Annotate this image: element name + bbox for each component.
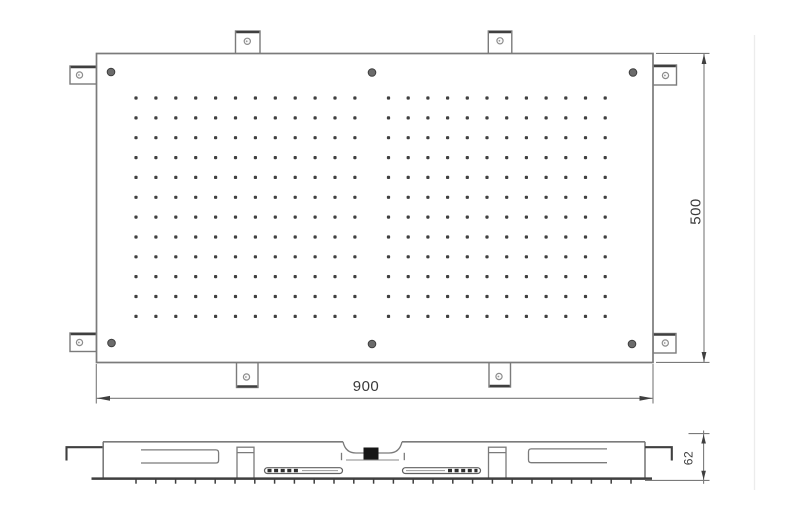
nozzle-dot — [466, 235, 469, 238]
nozzle-dot — [274, 136, 277, 139]
nozzle-dot — [505, 275, 508, 278]
nozzle-dot — [604, 255, 607, 258]
nozzle-dot — [485, 216, 488, 219]
screw-icon — [107, 68, 115, 76]
nozzle-dot — [274, 295, 277, 298]
nozzle-dot — [154, 216, 157, 219]
nozzle-dot — [584, 176, 587, 179]
nozzle-dot — [154, 96, 157, 99]
nozzle-dot — [525, 176, 528, 179]
nozzle-dot — [314, 255, 317, 258]
nozzle-dot — [564, 156, 567, 159]
nozzle-dot — [174, 196, 177, 199]
nozzle-dot — [294, 196, 297, 199]
nozzle-dot — [154, 255, 157, 258]
nozzle-dot — [134, 156, 137, 159]
nozzle-dot — [545, 136, 548, 139]
nozzle-dot — [353, 156, 356, 159]
water-inlet — [364, 448, 379, 460]
nozzle-dot — [254, 315, 257, 318]
mounting-tab — [236, 31, 261, 55]
nozzle-dot — [604, 196, 607, 199]
nozzle-dot — [353, 235, 356, 238]
nozzle-dot — [545, 96, 548, 99]
nozzle-dot — [333, 96, 336, 99]
nozzle-dot — [446, 216, 449, 219]
nozzle-dot — [446, 295, 449, 298]
screw-hole-center — [499, 40, 501, 42]
nozzle-dot — [466, 136, 469, 139]
nozzle-dot — [314, 136, 317, 139]
nozzle-dot — [314, 275, 317, 278]
nozzle-dot — [174, 96, 177, 99]
nozzle-dot — [545, 216, 548, 219]
nozzle-dot — [194, 235, 197, 238]
nozzle-dot — [254, 156, 257, 159]
nozzle-dot — [387, 295, 390, 298]
nozzle-dot — [294, 275, 297, 278]
screw-hole-center — [664, 75, 666, 77]
nozzle-dot — [314, 96, 317, 99]
nozzle-dot — [214, 156, 217, 159]
nozzle-dot — [353, 315, 356, 318]
nozzle-dot — [505, 116, 508, 119]
nozzle-dot — [426, 196, 429, 199]
nozzle-dot — [134, 216, 137, 219]
nozzle-dot — [505, 176, 508, 179]
nozzle-dot — [446, 96, 449, 99]
nozzle-dot — [564, 116, 567, 119]
nozzle-dot — [274, 255, 277, 258]
nozzle-dot — [174, 295, 177, 298]
nozzle-dot — [604, 96, 607, 99]
nozzle-dot — [387, 156, 390, 159]
nozzle-dot — [274, 216, 277, 219]
nozzle-dot — [154, 275, 157, 278]
nozzle-dot — [466, 216, 469, 219]
nozzle-dot — [314, 156, 317, 159]
screw-hole-center — [78, 74, 80, 76]
nozzle-dot — [274, 275, 277, 278]
nozzle-dot — [446, 235, 449, 238]
nozzle-dot — [407, 235, 410, 238]
nozzle-dot — [333, 295, 336, 298]
nozzle-dot — [333, 255, 336, 258]
arrow-left-icon — [97, 396, 110, 401]
nozzle-dot — [294, 96, 297, 99]
nozzle-dot — [407, 255, 410, 258]
nozzle-dot — [525, 96, 528, 99]
nozzle-dot — [426, 315, 429, 318]
nozzle-dot — [134, 295, 137, 298]
nozzle-dot — [407, 275, 410, 278]
nozzle-dot — [407, 216, 410, 219]
screw-hole-center — [245, 376, 247, 378]
nozzle-dot — [525, 136, 528, 139]
nozzle-dot — [604, 136, 607, 139]
nozzle-dot — [333, 176, 336, 179]
bracket-section-right — [489, 447, 507, 478]
nozzle-dot — [194, 116, 197, 119]
nozzle-dot — [134, 275, 137, 278]
nozzle-dot — [545, 235, 548, 238]
arrow-up-icon — [701, 435, 706, 444]
nozzle-dot — [314, 315, 317, 318]
nozzle-dot — [584, 96, 587, 99]
nozzle-dot — [254, 196, 257, 199]
nozzle-dot — [446, 275, 449, 278]
nozzle-dot — [353, 275, 356, 278]
nozzle-dot — [564, 315, 567, 318]
nozzle-dot — [564, 136, 567, 139]
nozzle-dot — [505, 196, 508, 199]
nozzle-dot — [254, 275, 257, 278]
nozzle-dot — [584, 275, 587, 278]
nozzle-dot — [466, 116, 469, 119]
right-channel — [529, 449, 608, 463]
nozzle-dot — [274, 96, 277, 99]
nozzle-dot — [234, 216, 237, 219]
nozzle-dot — [274, 235, 277, 238]
nozzle-dot — [154, 116, 157, 119]
nozzle-dot — [485, 96, 488, 99]
nozzle-dot — [254, 96, 257, 99]
height-value: 500 — [688, 198, 705, 225]
mounting-tab — [70, 66, 97, 84]
nozzle-dot — [214, 196, 217, 199]
nozzle-dot — [294, 156, 297, 159]
nozzle-dot — [134, 116, 137, 119]
nozzle-dot — [466, 96, 469, 99]
nozzle-dot — [604, 315, 607, 318]
nozzle-dot — [604, 275, 607, 278]
nozzle-dot — [525, 315, 528, 318]
nozzle-dot — [525, 255, 528, 258]
nozzle-dot — [426, 116, 429, 119]
left-channel — [141, 450, 219, 463]
nozzle-dot — [294, 216, 297, 219]
nozzle-dot — [485, 156, 488, 159]
nozzle-dot — [254, 235, 257, 238]
nozzle-dot — [294, 136, 297, 139]
nozzle-dot — [234, 196, 237, 199]
nozzle-dot — [485, 275, 488, 278]
nozzle-dot — [333, 216, 336, 219]
side-view: 62 — [67, 431, 710, 484]
nozzle-dot — [387, 216, 390, 219]
nozzle-dot — [254, 216, 257, 219]
nozzle-dot — [254, 255, 257, 258]
spray-strip-right — [403, 468, 481, 474]
nozzle-dot — [426, 295, 429, 298]
nozzle-dot — [407, 176, 410, 179]
nozzle-dot — [174, 116, 177, 119]
nozzle-dot — [545, 196, 548, 199]
nozzle-dot — [174, 315, 177, 318]
nozzle-dot — [154, 136, 157, 139]
nozzle-dot — [353, 176, 356, 179]
nozzle-dot — [194, 176, 197, 179]
nozzle-dot — [314, 116, 317, 119]
nozzle-dot — [174, 216, 177, 219]
nozzle-dot — [525, 275, 528, 278]
nozzle-dot — [314, 176, 317, 179]
nozzle-dot — [584, 315, 587, 318]
nozzle-dot — [174, 156, 177, 159]
nozzle-dot — [564, 176, 567, 179]
nozzle-dot — [604, 295, 607, 298]
nozzle-dot — [214, 315, 217, 318]
nozzle-dot — [604, 176, 607, 179]
nozzle-dot — [387, 176, 390, 179]
nozzle-dot — [254, 295, 257, 298]
nozzle-dot — [485, 255, 488, 258]
spray-strip-left — [265, 468, 343, 474]
screw-hole-center — [498, 376, 500, 378]
panel-outline — [97, 54, 654, 363]
nozzle-dot — [314, 196, 317, 199]
nozzle-dot — [564, 235, 567, 238]
nozzle-dot — [407, 196, 410, 199]
screw-icon — [368, 340, 376, 348]
nozzle-dot — [584, 255, 587, 258]
nozzle-dot — [564, 255, 567, 258]
nozzle-dot — [485, 196, 488, 199]
depth-dimension: 62 — [645, 431, 710, 484]
nozzle-dot — [194, 275, 197, 278]
nozzle-dot — [274, 156, 277, 159]
nozzle-dot — [604, 156, 607, 159]
nozzle-dot — [294, 295, 297, 298]
arrow-right-icon — [640, 396, 653, 401]
nozzle-dot — [214, 116, 217, 119]
nozzle-dot — [466, 156, 469, 159]
nozzle-dot — [604, 216, 607, 219]
nozzle-dot — [446, 116, 449, 119]
nozzle-dot — [604, 235, 607, 238]
nozzle-dot — [214, 235, 217, 238]
nozzle-dot — [154, 235, 157, 238]
nozzle-dot — [426, 176, 429, 179]
nozzle-dot — [604, 116, 607, 119]
nozzle-dot — [564, 295, 567, 298]
nozzle-dot — [584, 136, 587, 139]
nozzle-dot — [426, 96, 429, 99]
nozzle-dot — [525, 116, 528, 119]
top-view: 900 500 — [70, 31, 710, 404]
nozzle-dot — [584, 235, 587, 238]
nozzle-dot — [426, 275, 429, 278]
nozzle-dot — [466, 196, 469, 199]
nozzle-dot — [333, 156, 336, 159]
nozzle-dot — [545, 156, 548, 159]
nozzle-dot — [294, 176, 297, 179]
nozzle-dot — [485, 116, 488, 119]
nozzle-dot — [584, 295, 587, 298]
nozzle-dot — [154, 295, 157, 298]
nozzle-dot — [485, 235, 488, 238]
screw-hole-center — [78, 342, 80, 344]
nozzle-dot — [294, 255, 297, 258]
nozzle-dot — [274, 176, 277, 179]
nozzle-dot — [387, 196, 390, 199]
nozzle-dot — [584, 196, 587, 199]
nozzle-dot — [446, 136, 449, 139]
nozzle-dot — [134, 315, 137, 318]
mounting-tab — [653, 65, 677, 85]
nozzle-dot — [214, 295, 217, 298]
nozzle-dot — [545, 116, 548, 119]
nozzle-dot — [407, 315, 410, 318]
nozzle-dot — [194, 136, 197, 139]
nozzle-dot — [426, 156, 429, 159]
nozzle-dot — [505, 156, 508, 159]
nozzle-dot — [387, 315, 390, 318]
nozzle-dot — [564, 216, 567, 219]
mounting-tab — [488, 31, 512, 55]
nozzle-dot — [214, 176, 217, 179]
nozzle-dot — [564, 196, 567, 199]
nozzle-dot — [234, 315, 237, 318]
nozzle-dot — [214, 255, 217, 258]
nozzle-dot — [485, 315, 488, 318]
nozzle-dot — [134, 136, 137, 139]
nozzle-dot — [254, 136, 257, 139]
nozzle-dot — [353, 216, 356, 219]
nozzle-dot — [234, 116, 237, 119]
nozzle-dot — [407, 96, 410, 99]
nozzle-dot — [426, 136, 429, 139]
nozzle-dot — [545, 315, 548, 318]
nozzle-dot — [387, 136, 390, 139]
nozzle-dot — [254, 176, 257, 179]
nozzle-dot — [333, 196, 336, 199]
nozzle-dot — [254, 116, 257, 119]
nozzle-dot — [234, 275, 237, 278]
nozzle-dot — [505, 235, 508, 238]
height-dimension: 500 — [656, 53, 710, 362]
nozzle-dot — [274, 116, 277, 119]
nozzle-dot — [353, 136, 356, 139]
nozzle-dot — [505, 136, 508, 139]
width-dimension: 900 — [96, 364, 653, 404]
nozzle-dot — [333, 315, 336, 318]
nozzle-dot — [466, 315, 469, 318]
nozzle-dot — [525, 235, 528, 238]
nozzle-dot — [564, 96, 567, 99]
nozzle-dot — [525, 295, 528, 298]
nozzle-dot — [446, 315, 449, 318]
right-hook — [645, 447, 672, 460]
nozzle-dot — [134, 176, 137, 179]
mounting-tab — [237, 363, 259, 388]
depth-value: 62 — [682, 451, 696, 465]
nozzle-dot — [353, 196, 356, 199]
nozzle-dot — [446, 176, 449, 179]
nozzle-dot — [154, 156, 157, 159]
arrow-up-icon — [702, 54, 707, 64]
arrow-down-icon — [701, 471, 706, 480]
nozzle-dot — [154, 196, 157, 199]
nozzle-dot — [353, 96, 356, 99]
nozzle-dot — [194, 216, 197, 219]
nozzle-dot — [314, 295, 317, 298]
nozzle-dot — [505, 295, 508, 298]
nozzle-dot — [174, 176, 177, 179]
nozzle-dot — [194, 156, 197, 159]
nozzle-dot — [485, 176, 488, 179]
nozzle-dot — [446, 196, 449, 199]
nozzle-dot — [466, 295, 469, 298]
nozzle-dot — [426, 255, 429, 258]
nozzle-dot — [174, 136, 177, 139]
nozzle-dot — [525, 216, 528, 219]
nozzle-dot — [174, 275, 177, 278]
nozzle-dot — [387, 116, 390, 119]
nozzle-dot — [234, 176, 237, 179]
nozzle-dot — [387, 275, 390, 278]
bracket-section-left — [237, 447, 254, 478]
technical-drawing: 900 500 — [0, 0, 800, 528]
nozzle-dot — [353, 295, 356, 298]
screw-icon — [108, 339, 116, 347]
nozzle-dot — [584, 216, 587, 219]
nozzle-dot — [234, 136, 237, 139]
nozzle-dot — [387, 235, 390, 238]
nozzle-dot — [134, 196, 137, 199]
nozzle-dot — [466, 176, 469, 179]
nozzle-dot — [545, 295, 548, 298]
nozzle-dot — [294, 235, 297, 238]
nozzle-dot — [485, 136, 488, 139]
mounting-tab — [653, 334, 676, 354]
nozzle-dot — [134, 96, 137, 99]
screw-hole-center — [664, 342, 666, 344]
nozzle-dot — [294, 116, 297, 119]
left-hook — [67, 447, 104, 460]
nozzle-dot — [333, 136, 336, 139]
nozzle-dot — [407, 136, 410, 139]
nozzle-dot — [584, 116, 587, 119]
nozzle-dot — [214, 275, 217, 278]
nozzle-dot — [333, 235, 336, 238]
screw-hole-center — [246, 40, 248, 42]
nozzle-dot — [194, 255, 197, 258]
nozzle-dot — [545, 275, 548, 278]
nozzle-dot — [485, 295, 488, 298]
nozzle-dot — [234, 255, 237, 258]
nozzle-dot — [214, 136, 217, 139]
nozzle-dot — [194, 315, 197, 318]
nozzle-dot — [446, 156, 449, 159]
nozzle-dot — [154, 176, 157, 179]
nozzle-dot — [174, 255, 177, 258]
nozzle-dot — [214, 216, 217, 219]
nozzle-dot — [333, 275, 336, 278]
nozzle-dot — [234, 295, 237, 298]
nozzle-dot — [234, 156, 237, 159]
nozzle-dot — [134, 235, 137, 238]
nozzle-dot — [333, 116, 336, 119]
nozzle-dot — [274, 196, 277, 199]
nozzle-dot — [154, 315, 157, 318]
nozzle-dot — [564, 275, 567, 278]
nozzle-dot — [314, 216, 317, 219]
nozzle-dot — [353, 116, 356, 119]
nozzle-dot — [505, 96, 508, 99]
nozzle-dot — [407, 156, 410, 159]
nozzle-dot — [387, 255, 390, 258]
